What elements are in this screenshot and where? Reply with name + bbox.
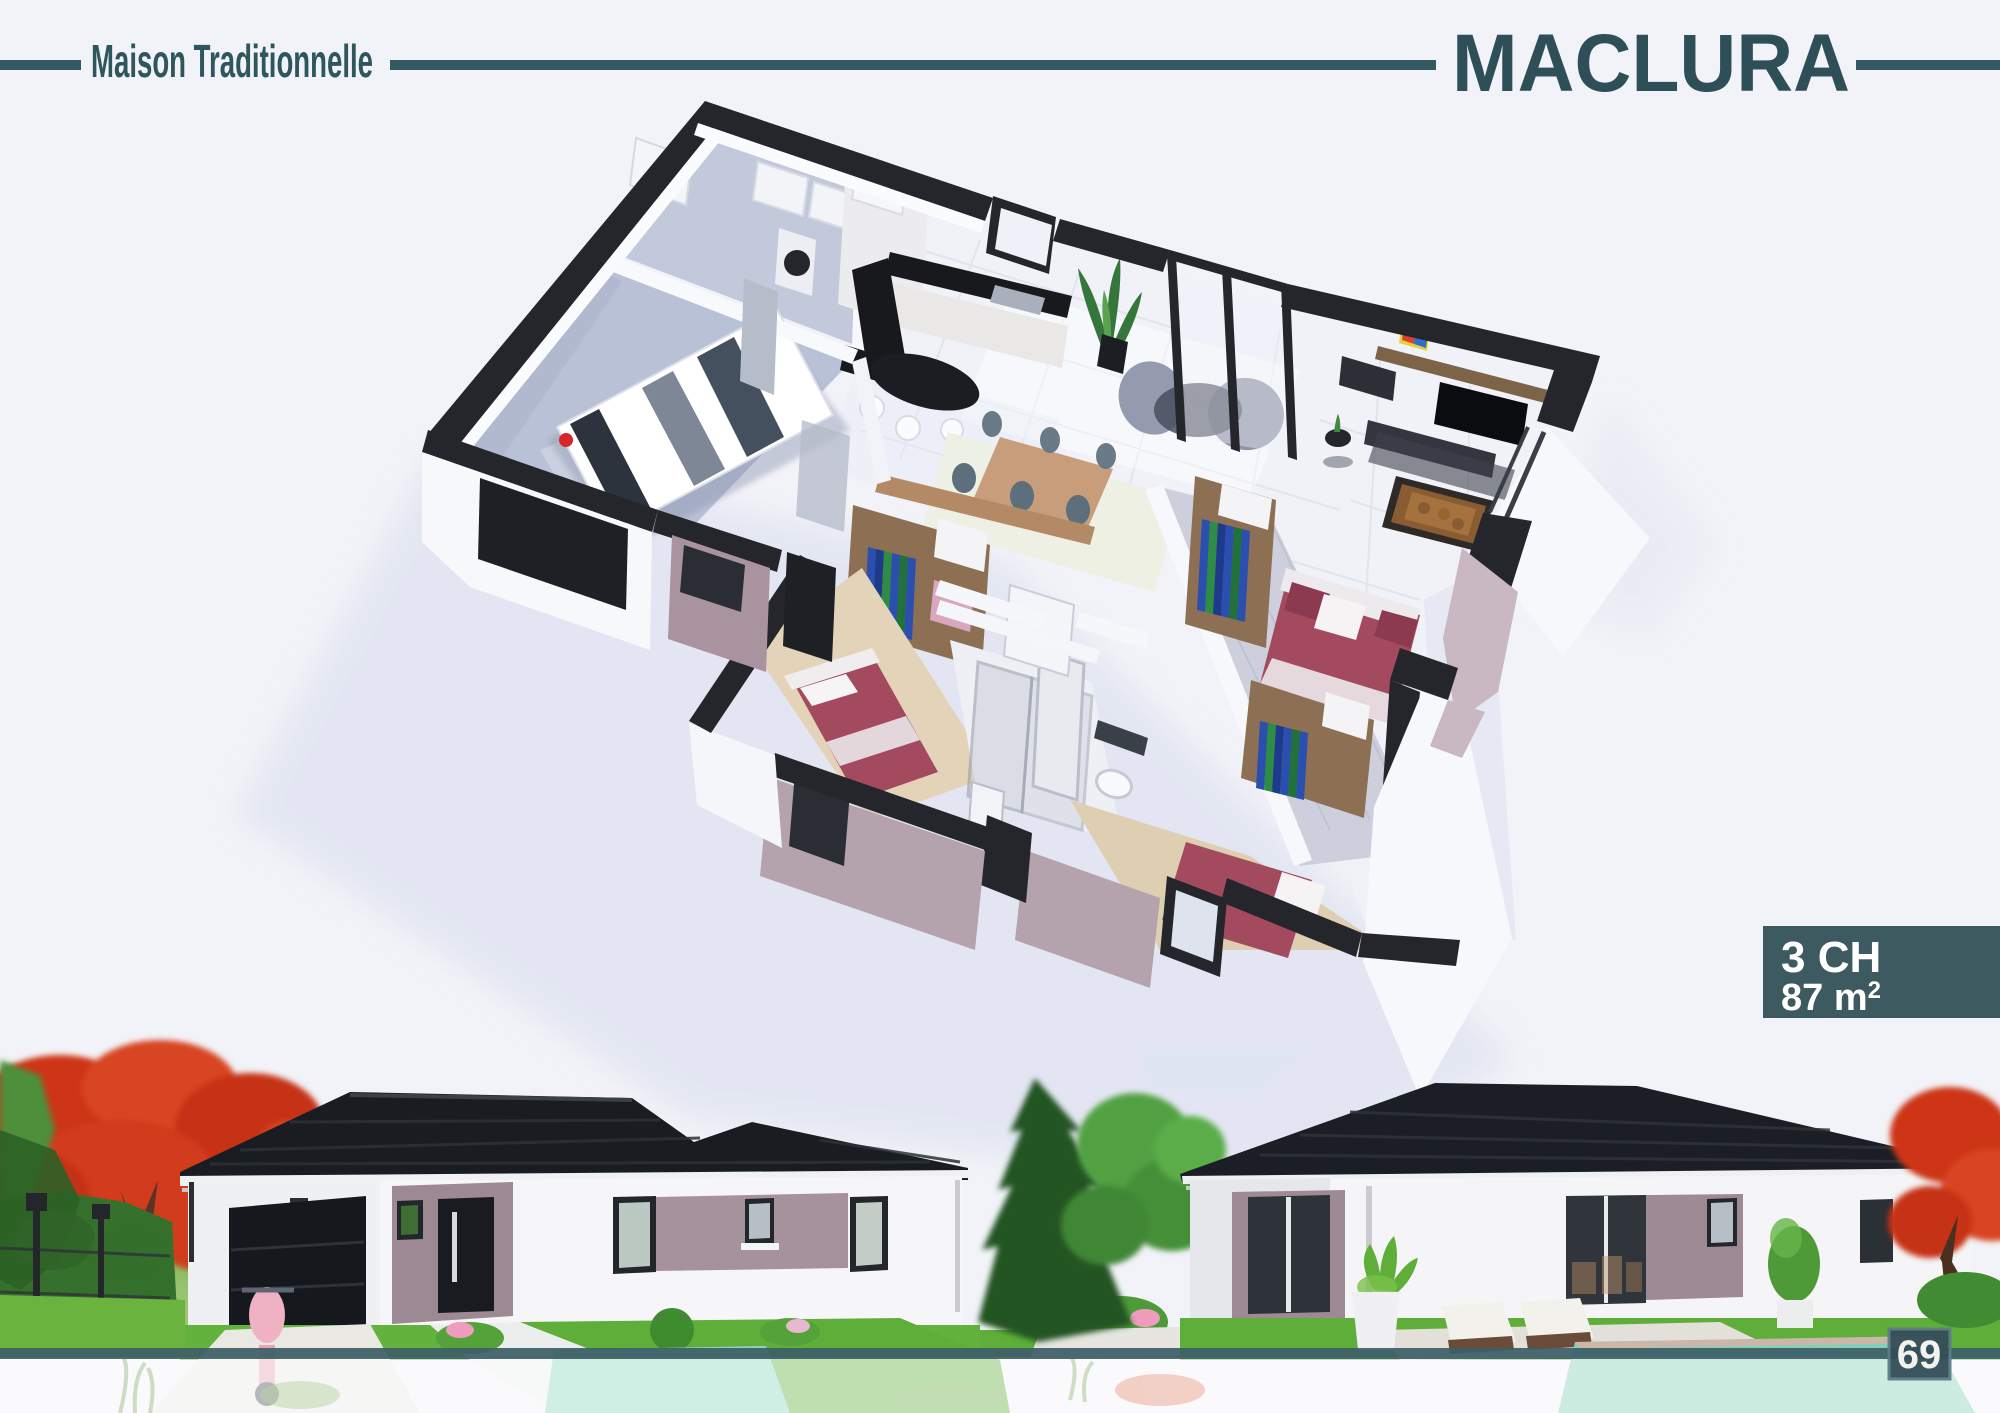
svg-text:MACLURA: MACLURA bbox=[1452, 18, 1850, 109]
svg-text:87 m2: 87 m2 bbox=[1781, 977, 1881, 1019]
svg-text:Maison Traditionnelle: Maison Traditionnelle bbox=[91, 35, 373, 87]
svg-text:3 CH: 3 CH bbox=[1781, 933, 1881, 982]
svg-text:69: 69 bbox=[1897, 1333, 1942, 1377]
